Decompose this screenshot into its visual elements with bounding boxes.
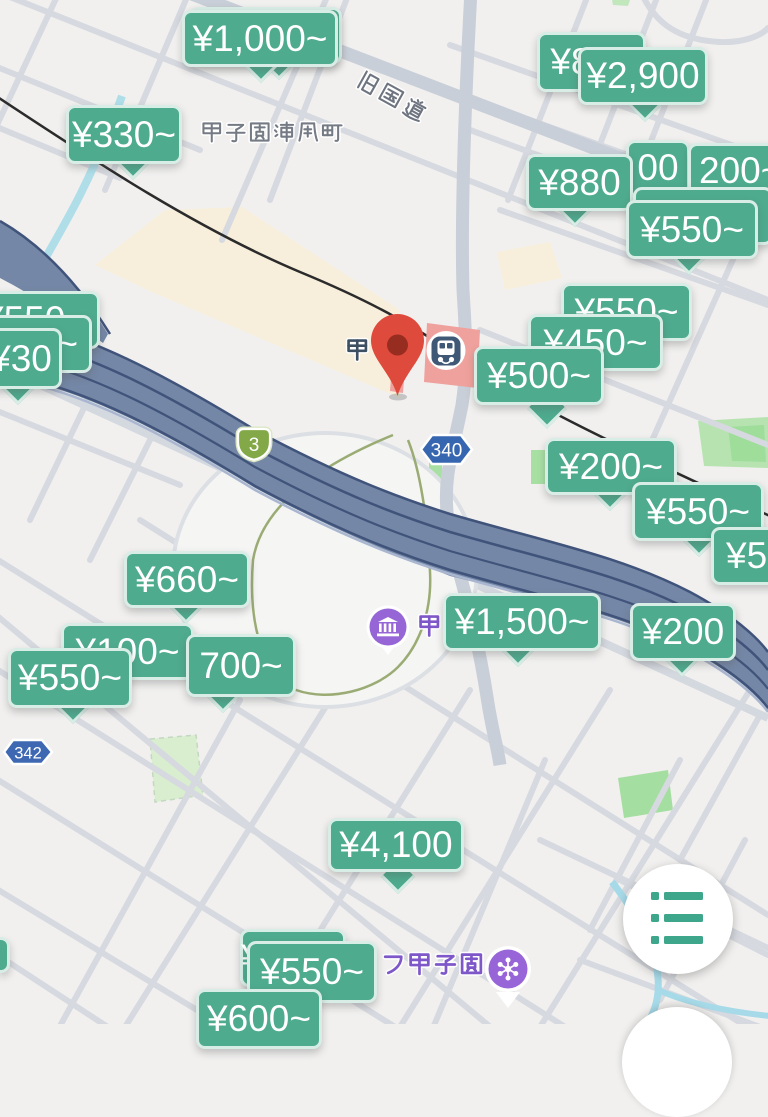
- svg-text:342: 342: [14, 745, 42, 763]
- svg-text:3: 3: [249, 435, 260, 456]
- svg-text:340: 340: [431, 441, 463, 462]
